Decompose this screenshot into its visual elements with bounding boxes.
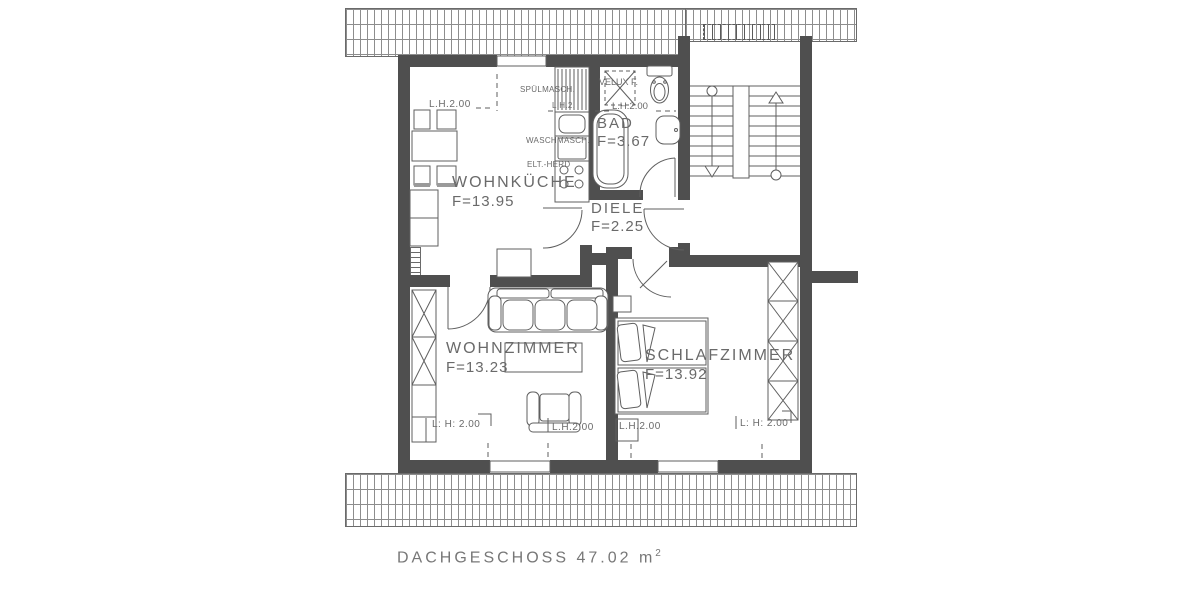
bedroom-area: F=13.92 [645, 367, 707, 384]
toilet [647, 66, 672, 103]
chair [414, 110, 430, 129]
bath-name: BAD [597, 116, 634, 133]
bedroom-height-label-left: L.H.2.00 [619, 421, 661, 432]
stair-down-start [707, 86, 717, 96]
stair-up-start [771, 170, 781, 180]
kitchen-area: F=13.95 [452, 194, 514, 211]
washing-machine-label: WASCHMASCH. [526, 137, 590, 146]
floorplan-canvas: L.H.2.00 SPÜLMASCH. L.H.2. WASCHMASCH. E… [0, 0, 1200, 600]
window-bottom-left [490, 461, 550, 472]
chimney [497, 249, 531, 277]
plan-title-sup: 2 [655, 548, 664, 559]
washbasin [656, 116, 680, 144]
living-area: F=13.23 [446, 360, 508, 377]
kitchen-dining-set [410, 110, 457, 246]
door-entry [644, 209, 684, 250]
kitchen-height-label-small: L.H.2. [552, 102, 575, 111]
dishwasher-label: SPÜLMASCH. [520, 86, 575, 95]
door-kitchen-hall [543, 208, 582, 248]
kitchen-name: WOHNKÜCHE [452, 174, 577, 192]
kitchen-cabinet [410, 190, 438, 218]
sofa [488, 288, 608, 332]
chair [437, 110, 456, 129]
stove-label: ELT.-HERD [527, 161, 570, 170]
living-name: WOHNZIMMER [446, 340, 580, 358]
plan-title: DACHGESCHOSS 47.02 m2 [397, 548, 664, 567]
bedroom-wardrobe [768, 262, 798, 420]
living-height-label-center: L.H.2.00 [552, 422, 594, 433]
kitchen-cabinet [410, 218, 438, 246]
bath-area: F=3.67 [597, 134, 650, 151]
kitchen-height-label: L.H.2.00 [429, 99, 471, 110]
door-bath [640, 158, 675, 197]
door-living [448, 287, 490, 329]
velux-label: VELUX F. [599, 78, 638, 88]
hall-name: DIELE [591, 201, 644, 218]
window-bottom-right [658, 461, 718, 472]
bedroom-shelf [613, 296, 631, 312]
stair-up-arrow [769, 92, 783, 103]
stair-divider [733, 86, 749, 178]
plan-linework [0, 0, 1200, 600]
hall-area: F=2.25 [591, 219, 644, 236]
bedroom-name: SCHLAFZIMMER [645, 347, 795, 365]
door-bedroom [633, 259, 671, 297]
plan-title-text: DACHGESCHOSS 47.02 m [397, 549, 655, 566]
living-height-label-left: L: H: 2.00 [432, 419, 480, 430]
bedroom-height-label-right: L: H: 2.00 [740, 418, 788, 429]
chair [414, 166, 430, 185]
bath-height-label: L.H.2.00 [612, 102, 648, 112]
stair-down-arrow [705, 166, 719, 177]
stairs [690, 86, 800, 180]
window-top [497, 56, 546, 66]
kitchen-table [412, 131, 457, 161]
